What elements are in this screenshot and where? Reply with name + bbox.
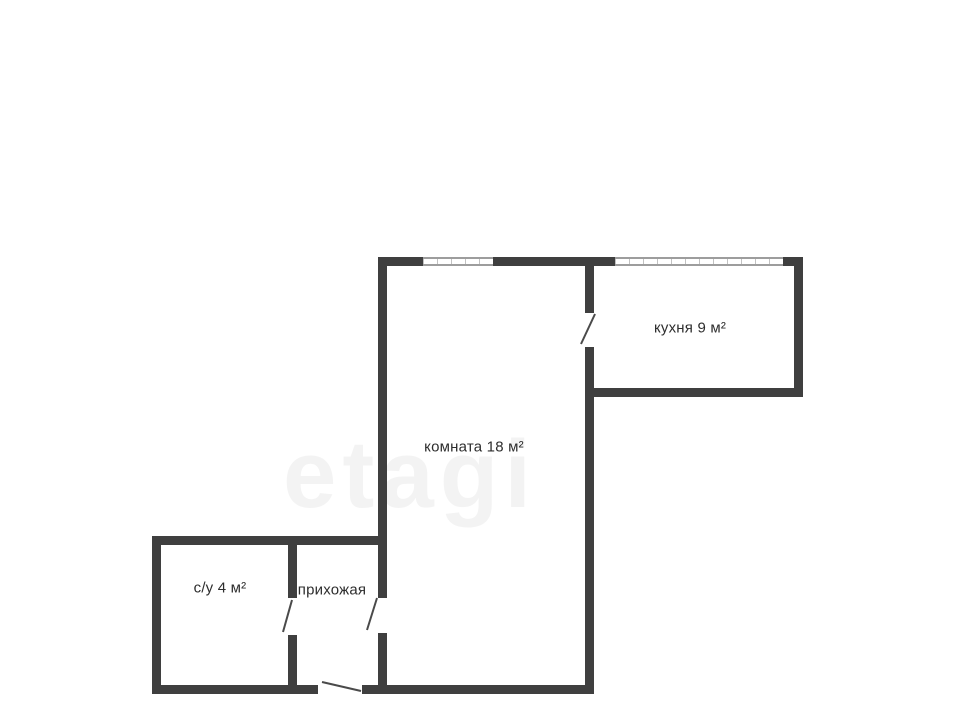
kitchen-label: кухня 9 м² — [654, 320, 726, 337]
entrance-door-leaf — [322, 682, 361, 691]
kitchen-door-leaf — [581, 314, 595, 344]
floor-plan: etagi кухня 9 м² комната 18 м² с/у 4 м² … — [0, 0, 960, 710]
bathroom-door-leaf — [283, 600, 292, 632]
hallway-room-door-leaf — [367, 598, 377, 630]
door-leaves-layer — [0, 0, 960, 710]
room-label: комната 18 м² — [424, 439, 524, 456]
bathroom-label: с/у 4 м² — [194, 580, 247, 597]
hallway-label: прихожая — [298, 582, 366, 599]
